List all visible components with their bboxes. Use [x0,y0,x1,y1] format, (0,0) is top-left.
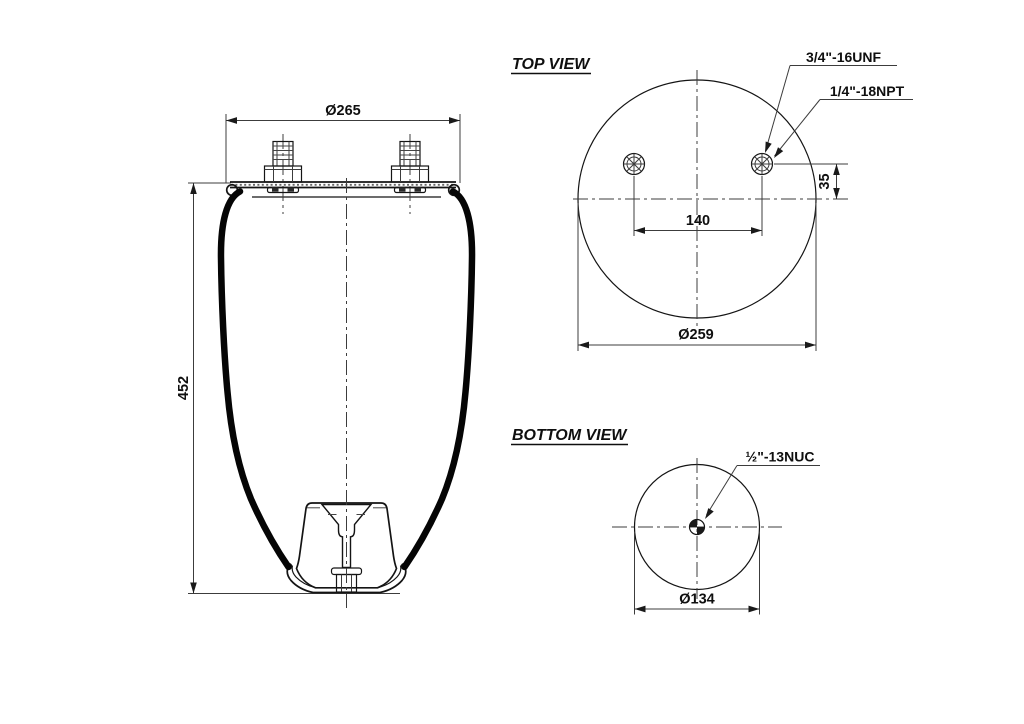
top-view-title: TOP VIEW [512,56,591,73]
dim-port-offset: 35 [774,164,848,199]
air-port-thread-label: 1/4"-18NPT [830,83,905,99]
dim-stud-spacing: 140 [634,176,762,236]
mounting-stud-right [392,134,429,214]
top-view: TOP VIEW 3/4"-16UNF [511,49,913,351]
drawing-page: Ø265 452 [0,0,1024,724]
dim-top-plate-diameter: Ø265 [226,103,460,183]
bottom-view-title: BOTTOM VIEW [512,427,628,444]
bottom-stud-thread-label: ½"-13NUC [746,449,815,465]
side-view: Ø265 452 [176,103,472,608]
stud-thread-label: 3/4"-16UNF [806,49,882,65]
bellows-left-wall [221,192,289,568]
center-mark [690,520,705,535]
air-spring-technical-drawing: Ø265 452 [0,0,1024,724]
dim-stud-spacing-label: 140 [686,213,710,229]
top-plate [227,182,460,197]
dim-overall-height-label: 452 [176,376,192,400]
air-port-thread-leader: 1/4"-18NPT [774,83,913,158]
stud-hole-left [624,154,645,175]
stud-thread-leader: 3/4"-16UNF [765,49,897,153]
stud-hole-right [752,154,773,175]
bottom-stud-thread-leader: ½"-13NUC [705,449,820,520]
dim-port-offset-label: 35 [817,173,833,189]
dim-plate-diameter-label: Ø259 [678,327,713,343]
bottom-view: BOTTOM VIEW ½"-13NUC Ø134 [511,427,820,615]
dim-overall-height: 452 [176,183,400,594]
dim-top-plate-diameter-label: Ø265 [325,103,360,119]
bellows-right-wall [405,192,473,568]
mounting-stud-left [265,134,302,214]
dim-piston-diameter-label: Ø134 [679,592,714,608]
